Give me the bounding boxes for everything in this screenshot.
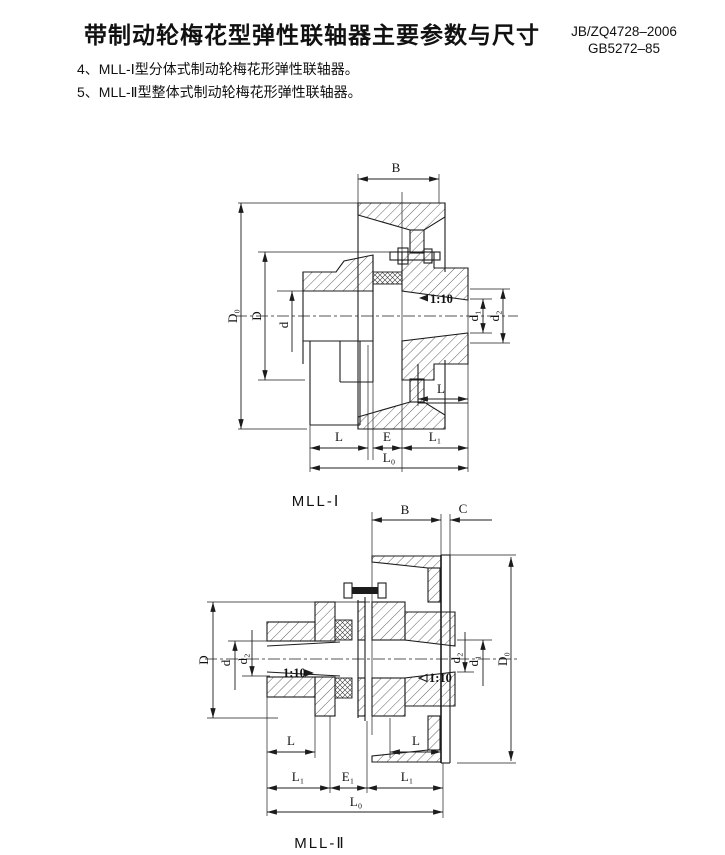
figure2-caption: MLL-Ⅱ [294, 835, 346, 852]
dim-label-d2l: d₂ [235, 653, 250, 664]
dim-label-L0-1: L₀ [383, 450, 395, 465]
taper-label-1: 1:10 [430, 292, 453, 306]
mll2-dimensions: B C D₀ D d [196, 501, 516, 818]
mll2-bolt [344, 583, 386, 598]
dim-label-d-1: d [276, 321, 291, 328]
dim-label-d2r: d₂ [448, 652, 463, 663]
dim-label-D0-2: D₀ [495, 652, 510, 666]
dim-label-E-1: E [383, 429, 391, 444]
dim-label-d2-1: d₂ [487, 310, 502, 321]
mll1-centerlines [235, 192, 518, 472]
dim-label-Lr-1: L [437, 381, 445, 396]
dim-label-d1-2: d₁ [466, 655, 481, 666]
dim-label-D-2: D [196, 655, 211, 664]
technical-drawings: B D₀ D d 1:10 [0, 0, 725, 855]
dim-label-D-1: D [249, 311, 264, 320]
taper-label-2r: 1:10 [429, 671, 452, 685]
dim-label-L1l: L₁ [292, 769, 304, 784]
mll1-elastomer-spider [373, 272, 402, 284]
dim-label-L1r: L₁ [401, 769, 413, 784]
mll1-left-hub [303, 255, 373, 425]
taper-label-2l: 1:10 [283, 666, 306, 680]
dim-label-Ll-2: L [287, 733, 295, 748]
dim-label-E1: E₁ [342, 769, 354, 784]
figure-mll1: B D₀ D d 1:10 [225, 160, 518, 510]
figure-mll2: B C D₀ D d [196, 501, 520, 852]
dim-label-Lr-2: L [412, 733, 420, 748]
dim-label-B2: B [401, 502, 410, 517]
dim-label-D0-1: D₀ [225, 309, 240, 323]
dim-label-L0-2: L₀ [350, 794, 362, 809]
dim-label-L-1: L [335, 429, 343, 444]
dim-label-L1-1: L₁ [429, 429, 441, 444]
mll1-right-hub [402, 252, 468, 403]
dim-label-B1: B [392, 160, 401, 175]
document-page: 带制动轮梅花型弹性联轴器主要参数与尺寸 JB/ZQ4728–2006 GB527… [0, 0, 725, 855]
figure1-caption: MLL-Ⅰ [292, 493, 341, 510]
dim-label-C: C [459, 501, 468, 516]
dim-label-d-2: d [218, 659, 233, 666]
